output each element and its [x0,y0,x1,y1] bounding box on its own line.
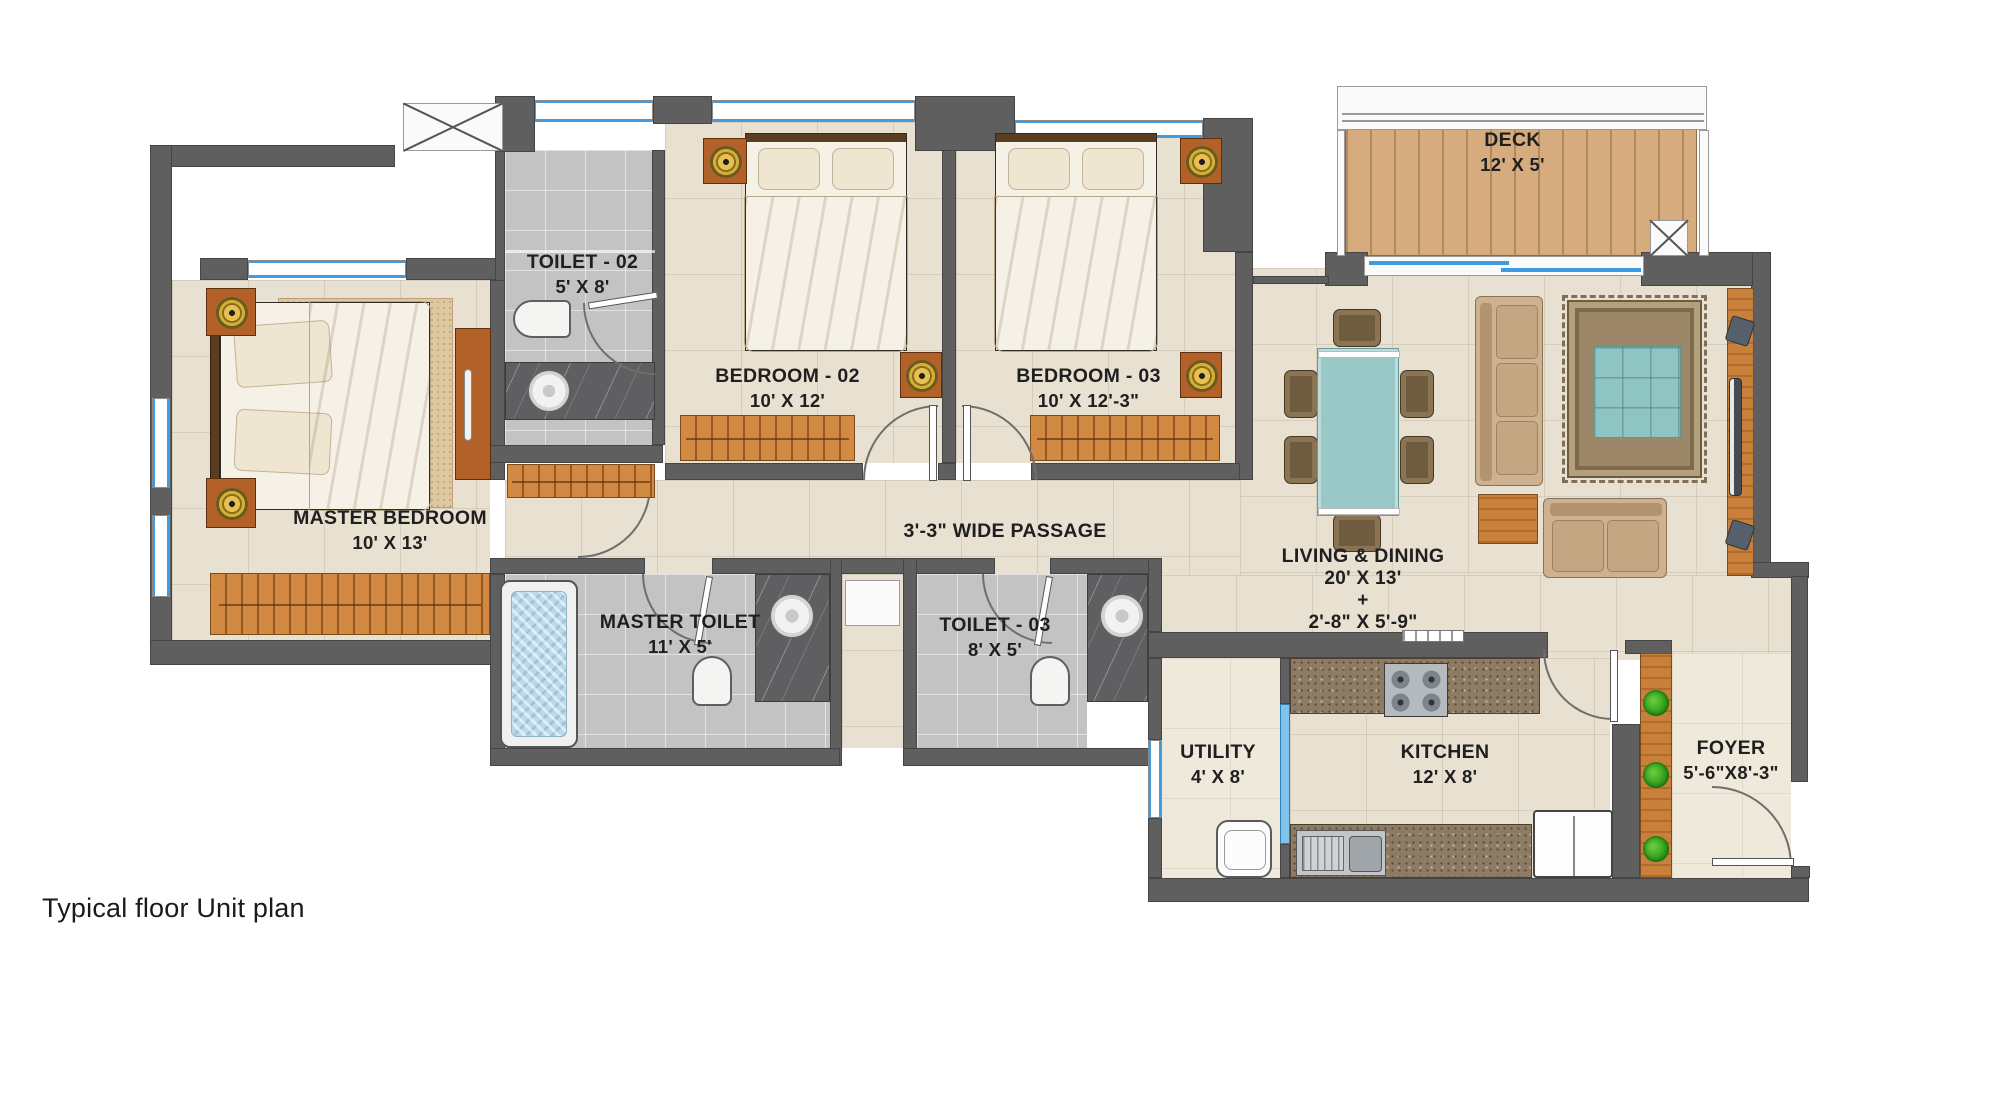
plus-sign: + [1256,591,1470,612]
wardrobe [210,573,490,635]
table-end [1318,508,1400,515]
plant [1643,690,1669,716]
room-name: LIVING & DINING [1256,546,1470,568]
room-name: KITCHEN [1330,742,1560,764]
wardrobe [680,415,855,461]
room-dims: 20' X 13' [1256,569,1470,590]
wall [665,463,863,480]
sink-drainboard [1302,836,1344,871]
wall [903,558,917,766]
room-name: TOILET - 02 [505,252,660,274]
blanket [309,301,431,511]
mirror [464,369,472,441]
entrance-door-leaf [1712,858,1794,866]
duct-crossbox [403,103,503,151]
dining-chair [1284,370,1318,418]
toilet-wc [513,300,571,338]
wall [150,145,395,167]
wall [1235,252,1253,480]
wall [1325,252,1368,286]
blanket [744,196,908,352]
sofa-cushion [1552,520,1604,572]
wall [1050,558,1162,574]
bathtub-water [511,591,567,737]
window [1148,740,1162,818]
nightstand [206,478,256,528]
room-name: BEDROOM - 03 [966,366,1211,388]
master-toilet-label: MASTER TOILET 11' X 5' [565,612,795,658]
wall [1791,866,1810,878]
window [152,515,170,597]
bed-headboard [746,134,906,142]
deck-sliding-door [1364,256,1644,276]
wall [1148,632,1548,658]
deck-pergola-frame [1337,86,1707,130]
wall [712,558,995,574]
dresser [455,328,491,480]
wall [495,150,505,282]
bedroom03-label: BEDROOM - 03 10' X 12'-3" [966,366,1211,412]
sofa-backrest [1480,303,1492,481]
bed-headboard [996,134,1156,142]
wardrobe [507,464,655,498]
bedside-lamp [216,488,248,520]
room-dims: 4' X 8' [1162,767,1274,788]
room-dims: 8' X 5' [880,640,1110,661]
window [712,100,915,122]
pillow [1082,148,1144,190]
wall [1280,658,1290,704]
room-name: BEDROOM - 02 [665,366,910,388]
sofa-two-seater [1543,498,1667,578]
passage-label: 3'-3" WIDE PASSAGE [855,521,1155,543]
toilet03-label: TOILET - 03 8' X 5' [880,615,1110,661]
pergola-line [1342,120,1704,122]
wardrobe [1030,415,1220,461]
wall [942,150,956,463]
sink-basin [1349,836,1382,872]
wall [1148,558,1162,632]
window [535,100,653,122]
wall [1148,878,1809,902]
window [152,398,170,488]
rug-center [1593,346,1681,438]
dining-table [1317,348,1399,516]
door-leaf [963,405,971,481]
room-dims: 12' X 5' [1400,155,1625,176]
room-name: TOILET - 03 [880,615,1110,637]
bed [995,133,1157,351]
dining-chair [1400,436,1434,484]
room-dims: 5' X 8' [505,277,660,298]
wall [1148,818,1162,878]
dining-chair [1284,436,1318,484]
pillow [832,148,894,190]
wall [490,445,663,463]
nightstand [206,288,256,336]
washer-lid [1224,830,1266,870]
bedside-lamp [1186,146,1218,178]
room-name: MASTER BEDROOM [270,508,510,530]
pillow [1008,148,1070,190]
wall [490,748,840,766]
side-table [1478,494,1538,544]
room-dims: 5'-6"X8'-3" [1650,763,1812,784]
blanket [994,196,1158,352]
wall [150,640,505,665]
bedside-lamp [216,297,248,329]
room-name: MASTER TOILET [565,612,795,634]
utility-label: UTILITY 4' X 8' [1162,742,1274,788]
wall [1612,724,1640,878]
sofa-cushion [1496,363,1538,417]
kitchen-sink [1296,830,1386,876]
duct-crossbox [1650,220,1688,256]
bed [745,133,907,351]
refrigerator [1533,810,1613,878]
nightstand [703,138,747,184]
tv [1729,378,1742,496]
wall [1253,276,1329,284]
slider-panel [1369,261,1509,265]
kitchen-label: KITCHEN 12' X 8' [1330,742,1560,788]
toilet02-label: TOILET - 02 5' X 8' [505,252,660,298]
room-name: 3'-3" WIDE PASSAGE [855,521,1155,543]
master-bedroom-label: MASTER BEDROOM 10' X 13' [270,508,510,554]
bedside-lamp [710,146,742,178]
room-name: DECK [1400,130,1625,152]
wall [653,96,712,124]
utility-glass-partition [1280,704,1290,844]
room-name: FOYER [1650,738,1812,760]
sofa-cushion [1496,421,1538,475]
pergola-line [1342,113,1704,115]
nightstand [1180,138,1222,184]
washing-machine [1216,820,1272,878]
plant [1643,836,1669,862]
sofa-cushion [1607,520,1659,572]
wall [938,463,956,480]
wall [830,558,842,766]
fridge-divider [1573,816,1575,876]
wall [406,258,505,280]
room-name: UTILITY [1162,742,1274,764]
room-dims: 10' X 12'-3" [966,391,1211,412]
plan-caption: Typical floor Unit plan [42,893,305,924]
gas-stove [1384,663,1448,717]
wall [1625,640,1672,654]
window [248,260,406,278]
sofa-three-seater [1475,296,1543,486]
wall [1031,463,1240,480]
bathtub [500,580,578,748]
wash-basin [528,370,570,412]
dining-chair [1400,370,1434,418]
wall [490,558,645,574]
room-dims: 12' X 8' [1330,767,1560,788]
room-dims: 11' X 5' [565,637,795,658]
deck-label: DECK 12' X 5' [1400,130,1625,176]
bedroom02-label: BEDROOM - 02 10' X 12' [665,366,910,412]
door-leaf [1610,650,1618,722]
sofa-cushion [1496,305,1538,359]
living-rug [1567,300,1702,478]
room-dims: 2'-8" X 5'-9" [1256,613,1470,634]
wall [1148,658,1162,740]
wall [1280,844,1290,878]
toilet-wc [692,656,732,706]
room-dims: 10' X 13' [270,533,510,554]
wall [1641,252,1753,286]
floor-plan: DECK 12' X 5' TOILET - 02 5' X 8' BEDROO… [0,0,2000,1111]
bedside-lamp [906,360,938,392]
deck-rim [1337,130,1345,256]
wall [903,748,1162,766]
slider-panel [1501,268,1641,272]
dining-chair [1333,309,1381,347]
pillow [758,148,820,190]
table-end [1318,351,1400,358]
deck-rim [1699,130,1709,256]
toilet-wc [1030,656,1070,706]
sofa-backrest [1550,503,1662,516]
door-leaf [929,405,937,481]
wall [200,258,248,280]
foyer-label: FOYER 5'-6"X8'-3" [1650,738,1812,784]
living-dining-label: LIVING & DINING 20' X 13' + 2'-8" X 5'-9… [1256,546,1470,634]
room-dims: 10' X 12' [665,391,910,412]
